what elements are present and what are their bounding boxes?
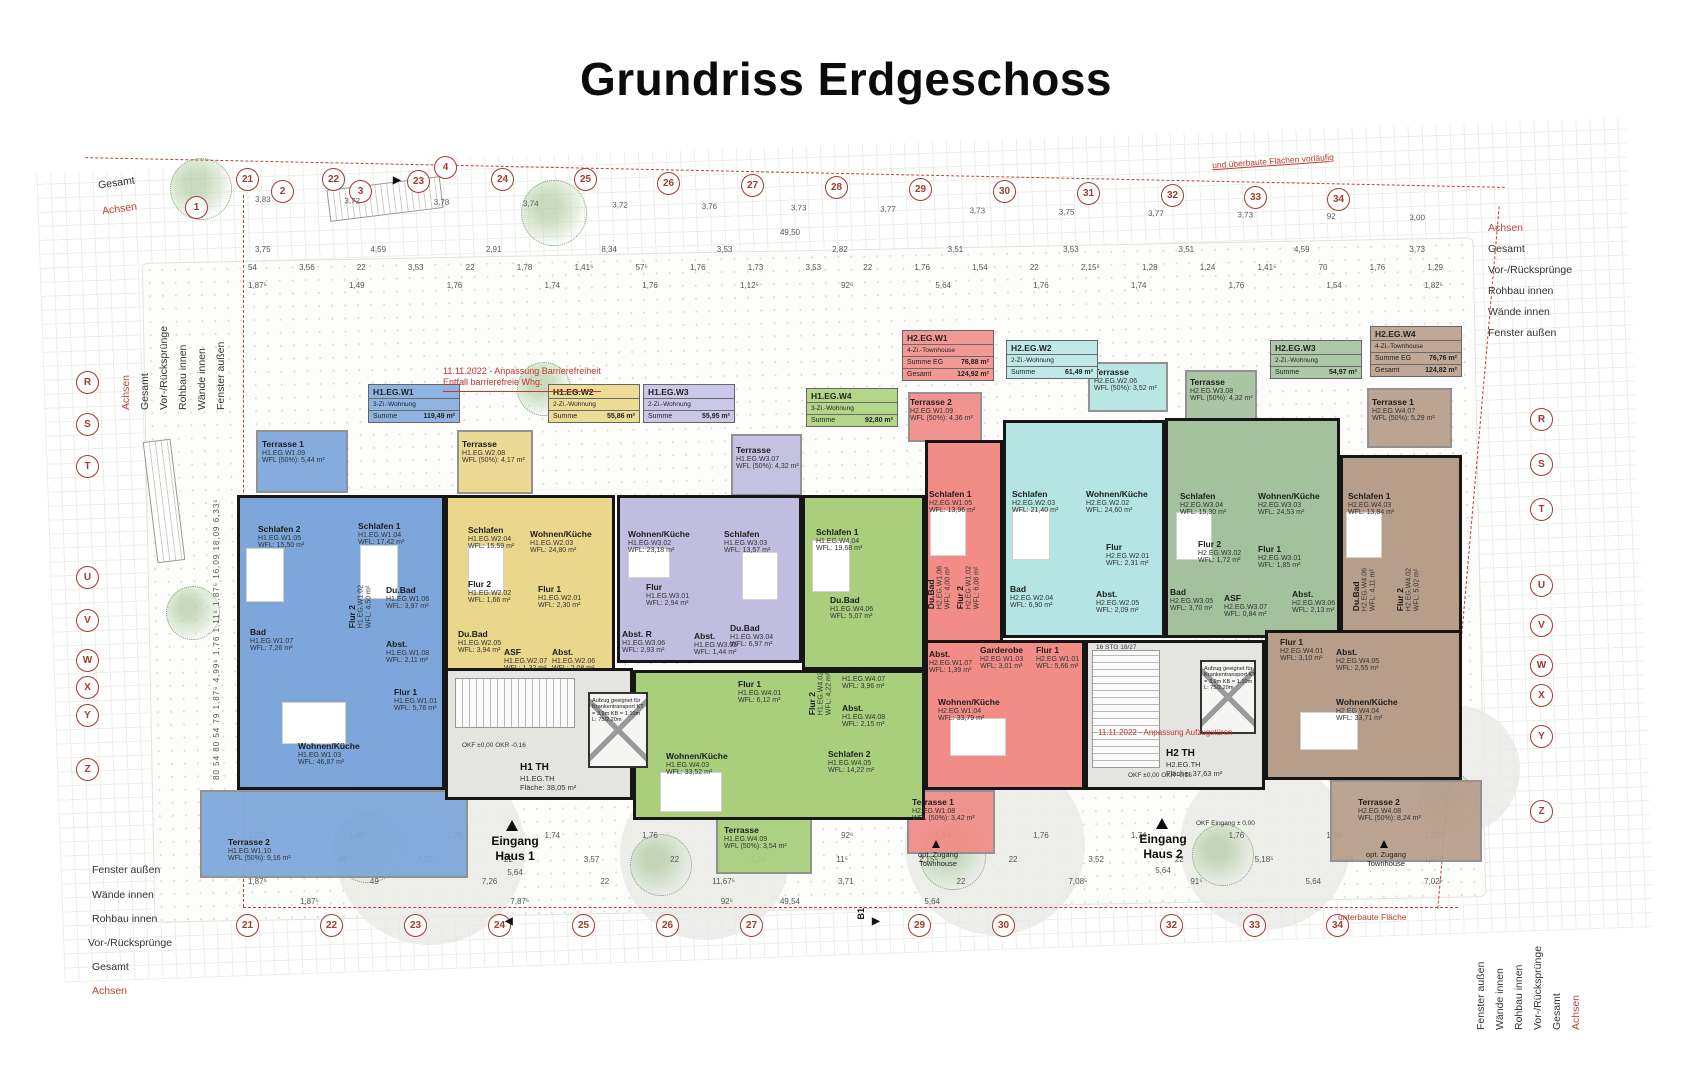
axis-letter: Z bbox=[76, 758, 99, 781]
margin-label-waende-innen: Wände innen bbox=[1494, 880, 1506, 1030]
axis-letter: U bbox=[76, 566, 99, 589]
unit-card-h2-eg-w4: H2.EG.W44-Zi.-Townhouse Summe EG76,76 m²… bbox=[1370, 326, 1462, 377]
axis-number: 21 bbox=[236, 914, 259, 937]
unit-card-h1-eg-w4: H1.EG.W43-Zi.-Wohnung Summe92,80 m² bbox=[806, 388, 898, 427]
room-label: Terrasse 1H2.EG.W4.07WFL (50%): 5,29 m² bbox=[1372, 398, 1435, 423]
axis-number: 1 bbox=[185, 196, 208, 219]
axis-number: 33 bbox=[1243, 914, 1266, 937]
margin-label-waende-innen: Wände innen bbox=[1488, 306, 1550, 318]
axis-letter: V bbox=[1530, 614, 1553, 637]
room-label: Abst.H2.EG.W1.07WFL: 1,39 m² bbox=[929, 650, 972, 675]
room-label: Flur 2H1.EG.W1.02WFL: 4,50 m² bbox=[348, 585, 373, 628]
section-marker-icon: ▶ bbox=[393, 175, 401, 186]
revision-note: 11.11.2022 - Anpassung Barrierefreiheit … bbox=[443, 366, 601, 392]
room-label: Flur 1H2.EG.W4.01WFL: 3,10 m² bbox=[1280, 638, 1323, 663]
dimension-chain: 1,87⁵ 49 7,26 22 11,67⁵ 3,71 22 7,08⁵ 91… bbox=[248, 878, 1443, 887]
dimension-chain: 3,75 4,59 2,91 8,34 3,53 2,82 3,51 3,53 … bbox=[255, 246, 1425, 255]
section-marker-icon: ▶ bbox=[872, 916, 880, 927]
room-label: Terrasse 1H1.EG.W1.09WFL (50%): 5,44 m² bbox=[262, 440, 325, 465]
axis-number: 30 bbox=[992, 914, 1015, 937]
unit-card-h2-eg-w3: H2.EG.W32-Zi.-Wohnung Summe54,97 m² bbox=[1270, 340, 1362, 379]
margin-label-waende-innen: Wände innen bbox=[196, 250, 208, 410]
elevator-note: Aufzug geeignet für Krankentransport KT … bbox=[1204, 666, 1256, 692]
room-label: TerrasseH1.EG.W2.08WFL (50%): 4,17 m² bbox=[462, 440, 525, 465]
room-label: FlurH1.EG.W3.01WFL: 2,94 m² bbox=[646, 583, 689, 608]
furniture bbox=[950, 718, 1006, 756]
unit-card-h2-eg-w1: H2.EG.W14-Zi.-Townhouse Summe EG76,88 m²… bbox=[902, 330, 994, 381]
dimension-total: 49,54 bbox=[755, 897, 825, 906]
margin-label-rohbau-innen: Rohbau innen bbox=[177, 250, 189, 410]
room-label: Du.BadH1.EG.W2.05WFL: 3,94 m² bbox=[458, 630, 501, 655]
axis-number: 32 bbox=[1160, 914, 1183, 937]
access-marker-icon bbox=[932, 840, 940, 848]
level-note: OKF Eingang ± 0,00 bbox=[1196, 820, 1255, 827]
axis-number: 30 bbox=[993, 180, 1016, 203]
room-label: Abst.H2.EG.W3.06WFL: 2,13 m² bbox=[1292, 590, 1335, 615]
tree-icon bbox=[521, 180, 587, 246]
room-label: Abst.H1.EG.W2.06WFL: 2,08 m² bbox=[552, 648, 595, 673]
axis-letter: Y bbox=[76, 704, 99, 727]
margin-label-gesamt: Gesamt bbox=[139, 250, 151, 410]
room-label: Wohnen/KücheH1.EG.W3.02WFL: 23,18 m² bbox=[628, 530, 690, 555]
axis-number: 28 bbox=[825, 176, 848, 199]
axis-letter: Z bbox=[1530, 800, 1553, 823]
axis-number: 34 bbox=[1327, 188, 1350, 211]
margin-label-fenster-aussen: Fenster außen bbox=[215, 250, 227, 410]
room-label: Flur 1H1.EG.W4.01WFL: 6,12 m² bbox=[738, 680, 781, 705]
room-label: SchlafenH2.EG.W2.03WFL: 21,40 m² bbox=[1012, 490, 1058, 515]
room-label: Flur 1H1.EG.W1.01WFL: 5,76 m² bbox=[394, 688, 437, 713]
margin-label-rohbau-innen: Rohbau innen bbox=[1513, 880, 1525, 1030]
margin-label-vorruecksprünge: Vor-/Rücksprünge bbox=[1532, 880, 1544, 1030]
entrance-marker-icon bbox=[1156, 818, 1168, 829]
room-label: SchlafenH1.EG.W2.04WFL: 15,59 m² bbox=[468, 526, 514, 551]
margin-label-waende-innen: Wände innen bbox=[92, 889, 154, 901]
axis-letter: R bbox=[1530, 408, 1553, 431]
room-label: Abst.H1.EG.W3.05WFL: 1,44 m² bbox=[694, 632, 737, 657]
room-label: Flur 2H2.EG.W4.02WFL: 5,02 m² bbox=[1396, 568, 1421, 611]
room-label: Du.BadH1.EG.W4.07WFL: 3,96 m² bbox=[842, 666, 885, 691]
axis-number: 26 bbox=[657, 172, 680, 195]
margin-label-fenster-aussen: Fenster außen bbox=[1488, 327, 1556, 339]
unit-card-h2-eg-w2: H2.EG.W22-Zi.-Wohnung Summe61,49 m² bbox=[1006, 340, 1098, 379]
access-marker-icon bbox=[1380, 840, 1388, 848]
entrance-dim: 5,64 bbox=[1128, 866, 1198, 875]
furniture bbox=[1012, 510, 1050, 560]
dimension-chain: 54 3,56 22 3,53 22 1,78 1,41⁵ 57⁵ 1,76 1… bbox=[248, 264, 1443, 273]
room-label: ASFH2.EG.W3.07WFL: 0,84 m² bbox=[1224, 594, 1267, 619]
floor-plan-canvas: Grundriss Erdgeschoss 1 21 2 22 3 23 4 2… bbox=[0, 0, 1692, 1080]
axis-letter: T bbox=[76, 455, 99, 478]
axis-number: 22 bbox=[322, 168, 345, 191]
level-note: OKF ±0,00 OKR -0,16 bbox=[462, 742, 526, 749]
room-label: Flur 2H2.EG.W1.02WFL: 6,08 m² bbox=[956, 566, 981, 609]
section-marker-label: B1 bbox=[856, 908, 866, 920]
level-note: OKF ±0,00 OKR -0,16 bbox=[1128, 772, 1192, 779]
room-label: Wohnen/KücheH2.EG.W2.02WFL: 24,60 m² bbox=[1086, 490, 1148, 515]
entrance-haus-1: Eingang Haus 1 bbox=[470, 834, 560, 864]
axis-number: 33 bbox=[1244, 186, 1267, 209]
room-label: Wohnen/KücheH1.EG.W2.03WFL: 24,80 m² bbox=[530, 530, 592, 555]
page-title: Grundriss Erdgeschoss bbox=[580, 52, 1112, 106]
axis-number: 23 bbox=[407, 170, 430, 193]
furniture bbox=[742, 552, 778, 600]
room-label: Abst. RH1.EG.W3.06WFL: 2,93 m² bbox=[622, 630, 665, 655]
axis-number: 29 bbox=[909, 178, 932, 201]
axis-letter: X bbox=[76, 676, 99, 699]
revision-note: unterbaute Fläche bbox=[1338, 912, 1407, 923]
axis-number: 22 bbox=[320, 914, 343, 937]
room-label: Wohnen/KücheH2.EG.W4.04WFL: 33,71 m² bbox=[1336, 698, 1398, 723]
furniture bbox=[246, 548, 284, 602]
room-label: Flur 1H1.EG.W2.01WFL: 2,30 m² bbox=[538, 585, 581, 610]
axis-number: 26 bbox=[656, 914, 679, 937]
room-label: Flur 1H2.EG.W3.01WFL: 1,85 m² bbox=[1258, 545, 1301, 570]
room-label: Schlafen 1H2.EG.W4.03WFL: 13,84 m² bbox=[1348, 492, 1394, 517]
axis-number: 21 bbox=[236, 168, 259, 191]
room-label: Flur 1H2.EG.W1.01WFL: 5,66 m² bbox=[1036, 646, 1079, 671]
room-label: BadH1.EG.W1.07WFL: 7,26 m² bbox=[250, 628, 293, 653]
room-label: Abst.H1.EG.W1.08WFL: 2,11 m² bbox=[386, 640, 429, 665]
axis-letter: U bbox=[1530, 574, 1553, 597]
room-label: Schlafen 2H1.EG.W1.05WFL: 15,50 m² bbox=[258, 525, 304, 550]
room-label: Du.BadH1.EG.W4.06WFL: 5,07 m² bbox=[830, 596, 873, 621]
margin-label-achsen: Achsen bbox=[92, 985, 127, 997]
stairs-icon bbox=[1092, 650, 1160, 768]
margin-label-fenster-aussen: Fenster außen bbox=[1475, 880, 1487, 1030]
room-label: Du.BadH2.EG.W1.06WFL: 4,00 m² bbox=[927, 566, 952, 609]
margin-label-achsen: Achsen bbox=[120, 250, 132, 410]
margin-label-rohbau-innen: Rohbau innen bbox=[1488, 285, 1553, 297]
axis-number: 27 bbox=[741, 174, 764, 197]
revision-note-line: Entfall barrierefreie Whg. bbox=[443, 377, 543, 387]
elevator-note: Aufzug geeignet für Krankentransport KT … bbox=[592, 698, 644, 724]
axis-letter: S bbox=[76, 413, 99, 436]
room-label: TerrasseH1.EG.W4.09WFL (50%): 3,54 m² bbox=[724, 826, 787, 851]
room-label: TerrasseH2.EG.W3.08WFL (50%): 4,32 m² bbox=[1190, 378, 1253, 403]
room-label: TerrasseH1.EG.W3.07WFL (50%): 4,32 m² bbox=[736, 446, 799, 471]
axis-number: 25 bbox=[574, 168, 597, 191]
axis-letter: W bbox=[1530, 654, 1553, 677]
room-label: Du.BadH1.EG.W1.06WFL: 3,97 m² bbox=[386, 586, 429, 611]
axis-letter: V bbox=[76, 609, 99, 632]
entrance-dim: 5,64 bbox=[480, 868, 550, 877]
room-label: BadH2.EG.W2.04WFL: 6,90 m² bbox=[1010, 585, 1053, 610]
room-label: Terrasse 2H2.EG.W1.09WFL (50%): 4,36 m² bbox=[910, 398, 973, 423]
axis-number: 32 bbox=[1161, 184, 1184, 207]
entrance-marker-icon bbox=[506, 820, 518, 831]
room-label: Schlafen 2H1.EG.W4.05WFL: 14,22 m² bbox=[828, 750, 874, 775]
room-label: Flur 2H1.EG.W2.02WFL: 1,66 m² bbox=[468, 580, 511, 605]
room-label: GarderobeH2.EG.W1.03WFL: 3,01 m² bbox=[980, 646, 1023, 671]
axis-letter: X bbox=[1530, 684, 1553, 707]
section-marker-icon: ◀ bbox=[505, 916, 513, 927]
room-label: Abst.H2.EG.W2.05WFL: 2,09 m² bbox=[1096, 590, 1139, 615]
axis-letter: R bbox=[76, 371, 99, 394]
room-label: TerrasseH2.EG.W2.06WFL (50%): 3,52 m² bbox=[1094, 368, 1157, 393]
room-label: Flur 2H2.EG.W3.02WFL: 1,72 m² bbox=[1198, 540, 1241, 565]
margin-label-achsen: Achsen bbox=[1570, 880, 1582, 1030]
axis-boundary-line bbox=[243, 907, 1458, 908]
optional-access-note: opt. Zugang Townhouse bbox=[898, 850, 978, 868]
room-label: Du.BadH2.EG.W4.06WFL: 4,11 m² bbox=[1352, 568, 1377, 611]
margin-label-achsen: Achsen bbox=[1488, 222, 1523, 234]
dimension-column: 80 54 80 54 79 1,87⁵ 4,99⁵ 1,76 1,11⁵ 1,… bbox=[212, 420, 222, 780]
axis-number: 4 bbox=[434, 156, 457, 179]
room-label: Terrasse 2H1.EG.W1.10WFL (50%): 9,16 m² bbox=[228, 838, 291, 863]
margin-label-vorruecksprünge: Vor-/Rücksprünge bbox=[88, 937, 172, 949]
furniture bbox=[1346, 512, 1382, 558]
axis-letter: W bbox=[76, 649, 99, 672]
axis-number: 27 bbox=[740, 914, 763, 937]
room-label: SchlafenH1.EG.W3.03WFL: 13,57 m² bbox=[724, 530, 770, 555]
margin-label-gesamt: Gesamt bbox=[1551, 880, 1563, 1030]
dimension-chain: 1,87⁵ 1,49 1,76 1,74 1,76 1,12⁵ 92⁶ 5,64… bbox=[248, 282, 1443, 291]
stair-note: 16 STG 18/27 bbox=[1096, 644, 1136, 651]
revision-note-line: 11.11.2022 - Anpassung Barrierefreiheit bbox=[443, 366, 601, 376]
room-label: Schlafen 1H1.EG.W4.04WFL: 19,68 m² bbox=[816, 528, 862, 553]
axis-number: 25 bbox=[572, 914, 595, 937]
axis-letter: Y bbox=[1530, 725, 1553, 748]
margin-label-vorruecksprünge: Vor-/Rücksprünge bbox=[158, 250, 170, 410]
room-label: Schlafen 1H1.EG.W1.04WFL: 17,42 m² bbox=[358, 522, 404, 547]
room-label: Wohnen/KücheH2.EG.W1.04WFL: 33,79 m² bbox=[938, 698, 1000, 723]
room-label: Wohnen/KücheH2.EG.W3.03WFL: 24,53 m² bbox=[1258, 492, 1320, 517]
axis-letter: S bbox=[1530, 453, 1553, 476]
margin-label-gesamt: Gesamt bbox=[92, 961, 129, 973]
margin-label-fenster-aussen: Fenster außen bbox=[92, 864, 160, 876]
room-label: Abst.H1.EG.W4.08WFL: 2,15 m² bbox=[842, 704, 885, 729]
room-label: Flur 2H1.EG.W4.02WFL: 4,22 m² bbox=[808, 672, 833, 715]
axis-number: 24 bbox=[491, 168, 514, 191]
axis-number: 23 bbox=[404, 914, 427, 937]
margin-label-vorruecksprünge: Vor-/Rücksprünge bbox=[1488, 264, 1572, 276]
terrace bbox=[200, 790, 468, 878]
dimension-chain: 1,87⁵ 7,87⁵ 92⁵ 5,64 bbox=[300, 898, 940, 907]
room-label: Wohnen/KücheH1.EG.W1.03WFL: 46,87 m² bbox=[298, 742, 360, 767]
stairwell-label: H1 THH1.EG.THFläche: 38,05 m² bbox=[520, 762, 576, 792]
axis-number: 31 bbox=[1077, 182, 1100, 205]
stairs-icon bbox=[455, 678, 575, 728]
room-label: Schlafen 1H2.EG.W1.05WFL: 13,96 m² bbox=[929, 490, 975, 515]
room-label: BadH2.EG.W3.05WFL: 3,70 m² bbox=[1170, 588, 1213, 613]
entrance-haus-2: Eingang Haus 2 bbox=[1118, 832, 1208, 862]
room-label: Wohnen/KücheH1.EG.W4.03WFL: 33,52 m² bbox=[666, 752, 728, 777]
room-label: SchlafenH2.EG.W3.04WFL: 15,30 m² bbox=[1180, 492, 1226, 517]
furniture bbox=[660, 772, 722, 812]
furniture bbox=[930, 510, 966, 556]
dimension-total: 49,50 bbox=[755, 228, 825, 237]
room-label: Abst.H2.EG.W4.05WFL: 2,55 m² bbox=[1336, 648, 1379, 673]
furniture bbox=[282, 702, 346, 744]
room-label: ASFH1.EG.W2.07WFL: 1,32 m² bbox=[504, 648, 547, 673]
revision-note: 11.11.2022 - Anpassung Aufzugstüren bbox=[1098, 728, 1232, 738]
optional-access-note: opt. Zugang Townhouse bbox=[1346, 850, 1426, 868]
margin-label-gesamt: Gesamt bbox=[1488, 243, 1525, 255]
room-label: Terrasse 1H2.EG.W1.08WFL (50%): 3,42 m² bbox=[912, 798, 975, 823]
axis-letter: T bbox=[1530, 498, 1553, 521]
unit-card-h1-eg-w3: H1.EG.W32-Zi.-Wohnung Summe55,95 m² bbox=[643, 384, 735, 423]
room-label: FlurH2.EG.W2.01WFL: 2,31 m² bbox=[1106, 543, 1149, 568]
room-label: Terrasse 2H2.EG.W4.08WFL (50%): 8,24 m² bbox=[1358, 798, 1421, 823]
margin-label-rohbau-innen: Rohbau innen bbox=[92, 913, 157, 925]
axis-number: 29 bbox=[908, 914, 931, 937]
